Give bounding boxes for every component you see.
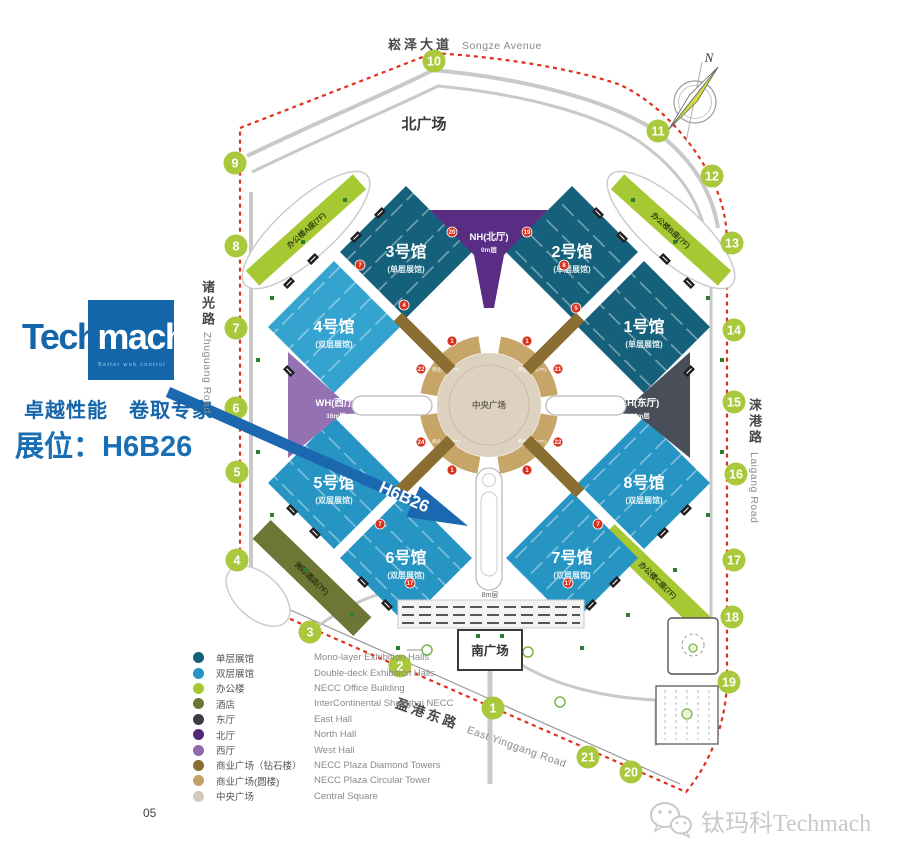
legend-item: 酒店InterContinental Shanghai NECC [193,696,533,711]
wechat-icon [648,800,694,840]
svg-text:7号馆: 7号馆 [552,548,593,567]
gate-21-label: 21 [581,750,595,764]
legend-dot [193,745,204,756]
legend-label-en: Central Square [314,791,378,802]
legend-label-en: NECC Plaza Circular Tower [314,775,431,786]
svg-text:(双层展馆): (双层展馆) [625,495,663,505]
zhuguang-road-zh: 诸光路 [198,280,217,328]
legend-item: 单层展馆Mono-layer Exhibition Halls [193,650,533,665]
svg-text:(双层展馆): (双层展馆) [315,339,353,349]
compass: N [669,50,718,142]
legend-item: 办公楼NECC Office Building [193,681,533,696]
tree-marker [673,240,677,244]
legend-dot [193,683,204,694]
legend-label-zh: 商业广场(圆楼) [216,774,314,788]
svg-text:17: 17 [565,581,572,587]
gate-18-label: 18 [725,610,739,624]
booth-number: 展位：H6B26 [15,423,192,465]
tree-marker [303,568,307,572]
svg-text:3号馆: 3号馆 [386,242,427,261]
legend-label-zh: 办公楼 [216,681,314,695]
gate-11-label: 11 [651,124,664,138]
tree-marker [256,450,260,454]
tree-marker [301,240,305,244]
tree-marker [270,513,274,517]
tree-marker [720,450,724,454]
legend-dot [193,652,204,663]
legend-label-zh: 中央广场 [216,789,314,803]
svg-text:(双层展馆): (双层展馆) [315,495,353,505]
legend-label-zh: 商业广场（钻石楼） [216,758,314,772]
svg-text:NH(北厅): NH(北厅) [469,231,508,243]
legend-label-en: NECC Plaza Diamond Towers [314,760,441,771]
gate-3-label: 3 [307,625,314,639]
parking-area [656,618,718,744]
gate-9-label: 9 [232,156,239,170]
svg-text:(双层展馆): (双层展馆) [387,570,425,580]
svg-text:16m层: 16m层 [326,411,346,420]
legend-item: 商业广场(圆楼)NECC Plaza Circular Tower [193,773,533,788]
tree-marker [720,358,724,362]
svg-text:8号馆: 8号馆 [624,473,665,492]
legend-label-en: North Hall [314,729,356,740]
tree-marker [706,296,710,300]
svg-text:19: 19 [524,230,531,236]
legend-label-zh: 单层展馆 [216,651,314,665]
laigang-road-zh: 涞港路 [745,398,764,446]
svg-text:21: 21 [555,367,562,373]
page-number: 05 [143,806,156,820]
legend-item: 西厅West Hall [193,742,533,757]
tree-marker [476,634,480,638]
tree-marker [706,513,710,517]
svg-text:20: 20 [449,230,456,236]
svg-text:WH(西厅): WH(西厅) [315,398,356,409]
svg-text:16m层: 16m层 [630,411,650,420]
legend-label-zh: 北厅 [216,728,314,742]
logo-wordmark: Techmach [22,316,185,358]
svg-text:2号馆: 2号馆 [552,242,593,261]
tree-marker [270,296,274,300]
tree-marker [626,613,630,617]
legend-dot [193,668,204,679]
legend-dot [193,791,204,802]
gate-13-label: 13 [725,236,739,250]
svg-text:6号馆: 6号馆 [386,548,427,567]
legend: 单层展馆Mono-layer Exhibition Halls双层展馆Doubl… [193,650,533,804]
legend-item: 东厅East Hall [193,712,533,727]
legend-dot [193,775,204,786]
office-c-label: 办公楼C座(7F) [637,559,680,601]
legend-dot [193,714,204,725]
platform-label: 8m层 [482,591,499,599]
svg-text:17: 17 [407,581,414,587]
legend-item: 商业广场（钻石楼）NECC Plaza Diamond Towers [193,758,533,773]
legend-dot [193,760,204,771]
logo-tagline: Better web control [92,362,172,368]
slogan: 卓越性能 卷取专家 [24,394,213,423]
techmach-logo: Techmach Better web control [14,300,174,382]
svg-text:(单层展馆): (单层展馆) [625,339,663,349]
svg-text:(单层展馆): (单层展馆) [387,264,425,274]
svg-text:1号馆: 1号馆 [624,317,665,336]
svg-text:22: 22 [418,367,425,373]
laigang-road-en: Laigang Road [748,452,760,523]
gate-17-label: 17 [727,553,741,567]
svg-text:0m层: 0m层 [481,245,497,254]
tree-marker [673,568,677,572]
legend-dot [193,729,204,740]
legend-label-en: Double-deck Exhibition Halls [314,668,435,679]
legend-label-en: West Hall [314,745,354,756]
gate-19-label: 19 [722,675,736,689]
svg-text:24: 24 [418,440,425,446]
gate-12-label: 12 [705,169,719,183]
gate-16-label: 16 [729,467,743,481]
page: 办公楼A座(7F) 办公楼B座(7F) 办公楼C座(7F) 洲际酒店(7F) 3… [0,0,921,867]
legend-label-en: NECC Office Building [314,683,405,694]
legend-item: 北厅North Hall [193,727,533,742]
compass-n-label: N [704,50,715,65]
gate-20-label: 20 [624,765,638,779]
legend-label-zh: 东厅 [216,712,314,726]
tree-marker [631,198,635,202]
zhuguang-road-en: Zhuguang Road [201,332,213,414]
watermark-text: 钛玛科Techmach [701,803,871,838]
svg-text:4号馆: 4号馆 [314,317,355,336]
tree-marker [580,646,584,650]
legend-label-zh: 双层展馆 [216,666,314,680]
legend-label-zh: 酒店 [216,697,314,711]
tree-marker [500,634,504,638]
gate-10-label: 10 [427,54,441,68]
tree-marker [256,358,260,362]
gate-8-label: 8 [233,239,240,253]
tree-marker [343,198,347,202]
gate-14-label: 14 [727,323,741,337]
central-square-label: 中央广场 [472,400,507,410]
gate-6-label: 6 [233,401,240,415]
legend-item: 中央广场Central Square [193,789,533,804]
north-plaza-label: 北广场 [401,115,446,133]
legend-label-zh: 西厅 [216,743,314,757]
svg-text:22: 22 [555,440,562,446]
watermark: 钛玛科Techmach [648,800,871,840]
gate-4-label: 4 [234,553,241,567]
gate-5-label: 5 [234,465,241,479]
legend-label-en: East Hall [314,714,352,725]
tree-marker [350,613,354,617]
svg-text:(双层展馆): (双层展馆) [553,570,591,580]
gate-15-label: 15 [727,395,741,409]
legend-label-en: Mono-layer Exhibition Halls [314,652,429,663]
gate-7-label: 7 [233,321,240,335]
legend-label-en: InterContinental Shanghai NECC [314,698,453,709]
legend-dot [193,698,204,709]
legend-item: 双层展馆Double-deck Exhibition Halls [193,665,533,680]
songze-avenue-label: 崧泽大道 Songze Avenue [388,34,542,53]
